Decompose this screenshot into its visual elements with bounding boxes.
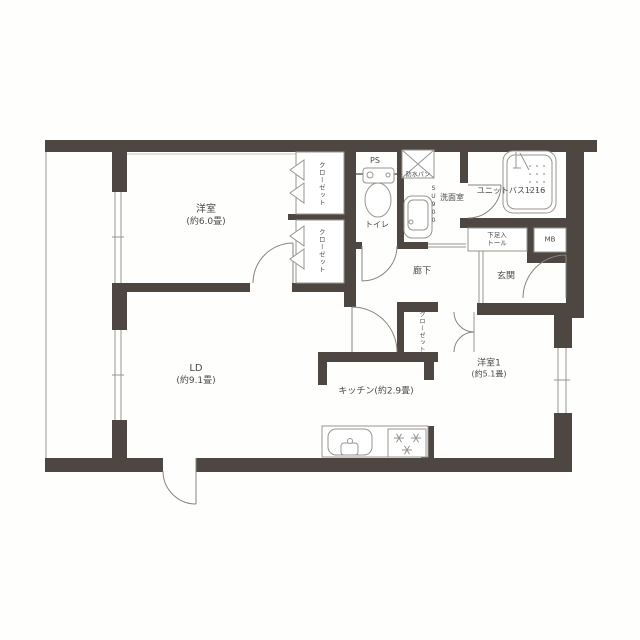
wall-segment	[112, 283, 250, 292]
wall-segment	[460, 148, 468, 183]
wall-segment	[477, 303, 584, 315]
label-washroom: 洗面室	[440, 193, 464, 203]
washbasin-icon	[404, 196, 432, 238]
label-closet-hall: クローゼット	[418, 311, 424, 353]
window-bedroom1	[554, 348, 570, 413]
bedroom1-name: 洋室1	[472, 358, 507, 369]
toilet-icon	[363, 168, 394, 217]
label-shoe-cabinet: 下足入 トール	[487, 231, 507, 247]
wall-segment	[554, 413, 572, 458]
label-toilet: トイレ	[365, 220, 389, 230]
label-hallway: 廊下	[413, 266, 431, 277]
label-living-dining: LD (約9.1畳)	[176, 363, 215, 387]
door-hall-closet-double[interactable]	[454, 312, 474, 352]
wall-segment	[424, 352, 434, 380]
wall-segment	[45, 458, 163, 472]
window-left-lower	[112, 330, 124, 420]
door-toilet[interactable]	[362, 246, 397, 281]
label-pipe-space: PS	[370, 156, 380, 166]
living-dining-size: (約9.1畳)	[176, 376, 215, 387]
bedroom1-size: (約5.1畳)	[472, 370, 507, 380]
label-closet-lower: クローゼット	[318, 229, 325, 274]
label-washer-pan: 防水パン	[406, 171, 430, 179]
floor-plan: 洋室 (約6.0畳) LD (約9.1畳) キッチン(約2.9畳) 洋室1 (約…	[0, 0, 640, 640]
wall-segment	[527, 252, 584, 263]
label-bedroom1: 洋室1 (約5.1畳)	[472, 358, 507, 379]
washroom-sliding-door[interactable]	[428, 244, 466, 247]
label-bedroom-main: 洋室 (約6.0畳)	[186, 204, 225, 228]
label-kitchen: キッチン(約2.9畳)	[338, 386, 413, 397]
living-dining-name: LD	[176, 363, 215, 376]
stove-icon	[388, 429, 426, 457]
shoe-cabinet-line1: 下足入	[487, 231, 507, 239]
bedroom-main-name: 洋室	[186, 204, 225, 217]
window-left-upper	[112, 192, 124, 283]
wall-segment	[566, 140, 584, 318]
wall-segment	[397, 242, 428, 249]
wall-segment	[112, 152, 127, 192]
wall-segment	[318, 352, 438, 362]
floor-plan-drawing	[0, 0, 640, 640]
bathtub-icon	[503, 151, 556, 213]
label-vanity-model: SU900	[430, 185, 436, 225]
bedroom-main-size: (約6.0畳)	[186, 217, 225, 228]
wall-segment	[45, 140, 597, 152]
kitchen-sink-icon	[328, 429, 372, 455]
wall-segment	[554, 315, 572, 348]
door-balcony[interactable]	[163, 458, 196, 504]
label-unit-bath: ユニットバス1216	[477, 186, 545, 196]
entrance-step-line	[479, 250, 483, 303]
wall-segment	[288, 214, 344, 220]
wall-segment	[460, 218, 584, 228]
wall-segment	[344, 242, 362, 249]
label-closet-upper: クローゼット	[318, 162, 325, 207]
label-entrance: 玄関	[497, 271, 515, 282]
wall-segment	[196, 458, 572, 472]
wall-segment	[318, 352, 327, 385]
label-meter-box: MB	[545, 236, 556, 245]
wall-segment	[344, 152, 356, 307]
shoe-cabinet-line2: トール	[487, 239, 507, 247]
door-living-dining[interactable]	[352, 307, 397, 352]
wall-segment	[112, 420, 127, 458]
door-bedroom-main[interactable]	[253, 243, 293, 283]
